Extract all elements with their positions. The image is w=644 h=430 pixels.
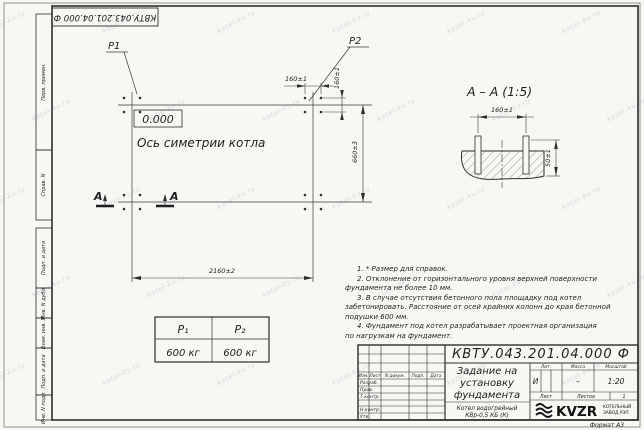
tb-mass-value: – [576, 377, 580, 386]
stamp-sprav-n: Справ. N [41, 173, 47, 196]
elevation-mark: 0.000 [142, 113, 174, 126]
dim-foundation-length: 2160±2 [132, 267, 313, 280]
dim-text-160h: 160±1 [285, 75, 307, 83]
section-letter-right: А [169, 190, 179, 203]
tb-sheets-label: Листов [576, 394, 595, 400]
section-view-title: А – А (1:5) [466, 84, 532, 99]
tb-title-line2: установку [459, 378, 515, 389]
dim-text-50: 50±1 [544, 149, 552, 167]
note-line: 3. В случае отсутствия бетонного пола пл… [357, 294, 582, 302]
load-table: P₁ P₂ 600 кг 600 кг [155, 317, 269, 362]
load-table-header-p1: P₁ [177, 323, 188, 336]
tb-row-nkontr: Н.контр. [360, 407, 381, 413]
tb-lit-header: Лит. [540, 364, 551, 370]
section-view-a-a: А – А (1:5) 160±1 50±1 [461, 84, 560, 188]
dim-foundation-width: 660±3 [351, 105, 365, 202]
tb-header-data: Дата [429, 373, 441, 379]
format-label: Формат А3 [590, 422, 624, 429]
stamp-podp-data-1: Подп. и дата [41, 241, 47, 275]
note-line: 4. Фундамент под котел разрабатывает про… [357, 322, 597, 330]
kvzr-logo: KVZR КОТЕЛЬНЫЙ ЗАВОД РЭП [536, 403, 631, 420]
left-margin-stamps: Перв. примен. Справ. N Подп. и дата Инв.… [36, 14, 52, 424]
dim-text-160v: 160±1 [333, 67, 341, 89]
boiler-axis-label: Ось симетрии котла [137, 136, 265, 150]
tb-doc-number: КВТУ.043.201.04.000 Ф [452, 347, 630, 362]
dim-text-660: 660±3 [351, 141, 359, 163]
tb-scale-header: Масштаб [605, 364, 627, 370]
tb-header-list: Лист [369, 373, 381, 379]
stamp-podp-data-2: Подп. и дата [41, 354, 47, 388]
foundation-block [461, 151, 544, 179]
load-point-p2-label: P2 [349, 36, 361, 47]
dim-bolt-spacing-vertical: 160±1 [323, 67, 346, 120]
kvzr-logo-text: KVZR [556, 404, 598, 420]
tb-row-razrab: Разраб. [360, 380, 378, 386]
stamp-vzam-inv: Взам. инв. N [41, 317, 47, 350]
tb-title-line1: Задание на [457, 366, 518, 377]
dim-text-2160: 2160±2 [209, 267, 235, 275]
kvzr-logo-sub2: ЗАВОД РЭП [603, 410, 629, 416]
tb-mass-header: Масса [571, 364, 586, 370]
top-doc-number-stamp: КВТУ.043.201.04.000 Ф [52, 8, 158, 26]
tb-row-tkontr: Т.контр. [360, 394, 380, 400]
stamp-inv-podl: Инв. N подл. [41, 391, 47, 424]
top-doc-number-text: КВТУ.043.201.04.000 Ф [54, 12, 157, 22]
section-cut-marks: А А [93, 190, 179, 206]
tb-scale-value: 1:20 [608, 377, 625, 386]
note-line: забетонировать. Расстояние от осей крайн… [345, 303, 611, 311]
anchor-bolt-right [523, 136, 529, 174]
stamp-inv-dubl: Инв. N дубл. [41, 287, 47, 320]
tb-header-izm: Изм. [358, 373, 368, 379]
tb-header-podp: Подп. [411, 373, 424, 379]
tb-product-line2: КВр-0,5 КБ (К) [465, 413, 509, 419]
tb-sheets-value: 1 [622, 394, 625, 400]
load-table-value-p2: 600 кг [223, 348, 257, 359]
note-line: подушки 600 мм. [345, 313, 409, 321]
anchor-bolt-left [475, 136, 481, 174]
tb-sheet-label: Лист [539, 394, 552, 400]
note-line: 1. * Размер для справок. [357, 265, 448, 273]
kvzr-coil-icon [536, 404, 552, 417]
title-block: Изм. Лист N докум. Подп. Дата Разраб. Пр… [358, 345, 638, 420]
section-letter-left: А [93, 190, 103, 203]
tb-product-line1: Котел водогрейный [457, 406, 518, 412]
drawing-sheet: kotel-kv.rukotel-kv.rukotel-kv.rukotel-k… [0, 0, 644, 430]
tb-row-prov: Пров. [360, 387, 373, 393]
kvzr-logo-sub1: КОТЕЛЬНЫЙ [603, 403, 631, 410]
load-point-p1-label: P1 [108, 41, 120, 52]
drawing-canvas: Перв. примен. Справ. N Подп. и дата Инв.… [0, 0, 644, 430]
tb-title-line3: фундамента [454, 390, 520, 401]
load-table-value-p1: 600 кг [166, 348, 200, 359]
load-table-header-p2: P₂ [234, 323, 246, 336]
technical-notes: 1. * Размер для справок. 2. Отклонение о… [345, 265, 611, 340]
tb-header-doc: N докум. [385, 373, 405, 379]
stamp-perv-primen: Перв. примен. [41, 63, 47, 101]
note-line: фундамента не более 10 мм. [345, 284, 453, 292]
tb-row-utv: Утв. [360, 414, 370, 420]
note-line: 2. Отклонение от горизонтального уровня … [357, 275, 597, 283]
foundation-plan-view: P1 P2 0.000 Ось симетрии котла А А [93, 36, 372, 282]
dim-text-section-160: 160±1 [491, 106, 513, 114]
note-line: по нагрузкам на фундамент. [345, 332, 452, 340]
tb-lit-value: И [533, 377, 539, 386]
